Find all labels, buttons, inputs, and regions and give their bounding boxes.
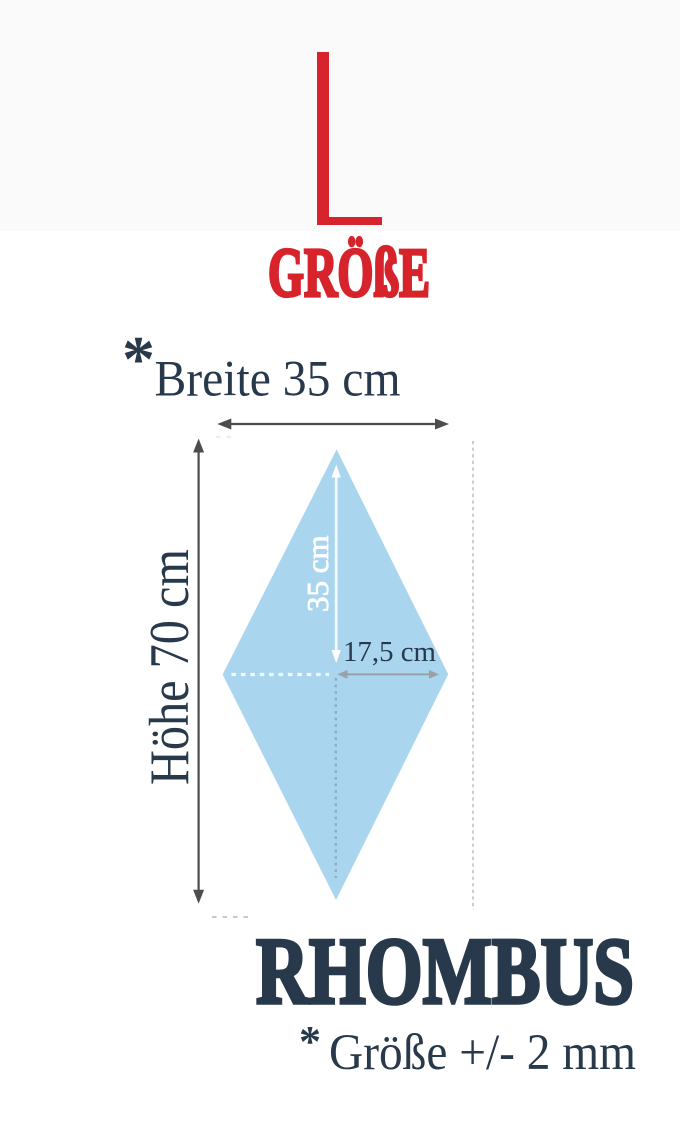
svg-text:*: * [299, 1017, 321, 1066]
svg-text:*: * [122, 323, 155, 396]
svg-text:RHOMBUS: RHOMBUS [256, 918, 634, 1024]
svg-text:35 cm: 35 cm [300, 535, 335, 612]
svg-text:GRÖßE: GRÖßE [268, 235, 430, 312]
svg-text:Höhe 70 cm: Höhe 70 cm [139, 549, 201, 785]
svg-text:Breite 35 cm: Breite 35 cm [155, 351, 401, 407]
svg-text:17,5 cm: 17,5 cm [343, 636, 436, 668]
svg-text:Größe +/- 2 mm: Größe +/- 2 mm [329, 1025, 636, 1081]
